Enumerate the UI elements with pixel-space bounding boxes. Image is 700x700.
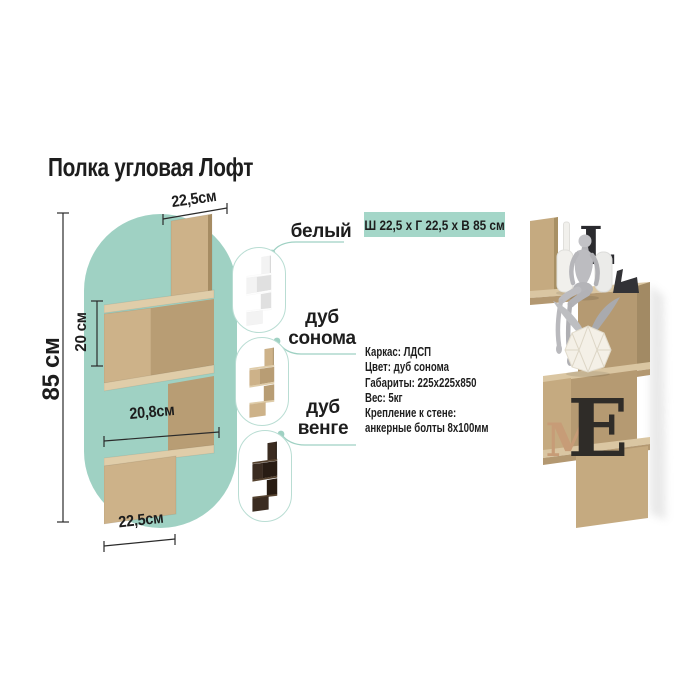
- product-photo: L M E: [0, 0, 700, 700]
- decor-letter-e: E: [568, 381, 629, 475]
- wall-shadow: [650, 285, 666, 520]
- decor-bookend: [613, 269, 639, 293]
- decor-faceted-vase: [565, 326, 611, 372]
